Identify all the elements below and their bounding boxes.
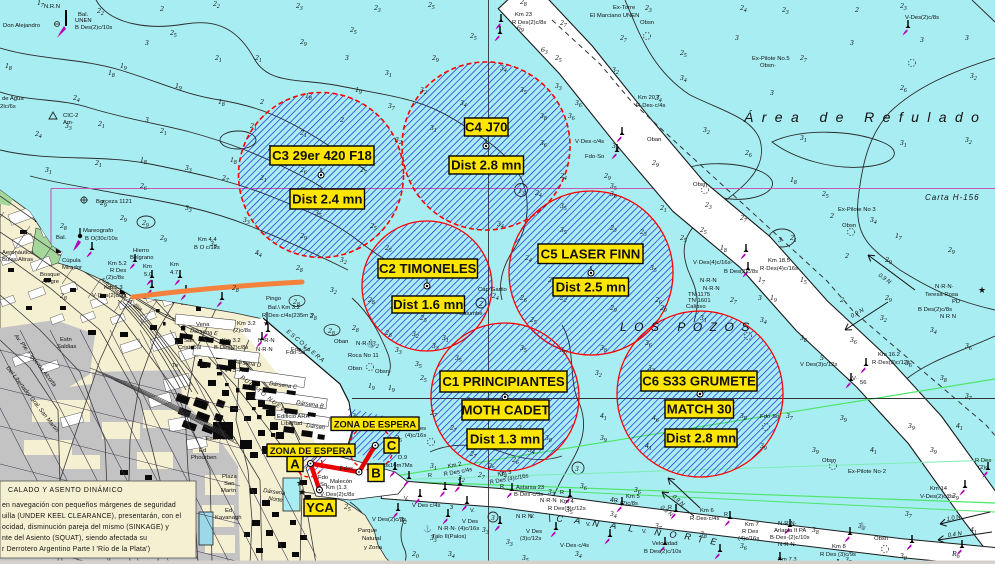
svg-text:Bosque: Bosque: [40, 272, 61, 278]
svg-text:Natural: Natural: [362, 536, 381, 542]
svg-text:⚓: ⚓: [858, 521, 867, 530]
svg-text:R: R: [560, 490, 564, 496]
svg-text:Ex-Pilote No.5: Ex-Pilote No.5: [752, 56, 790, 62]
svg-text:N R N: N R N: [940, 314, 956, 320]
svg-text:B·Des·c/3s: B·Des·c/3s: [514, 492, 543, 498]
svg-text:Arlapla II PA: Arlapla II PA: [774, 528, 806, 534]
svg-text:N.R.N: N.R.N: [44, 4, 60, 10]
svg-text:So: So: [320, 482, 328, 488]
svg-text:3: 3: [777, 235, 782, 244]
svg-text:R: R: [724, 512, 728, 518]
svg-text:(4)c/16s: (4)c/16s: [405, 433, 426, 439]
svg-text:Fdo·So: Fdo·So: [286, 350, 306, 356]
svg-text:Km 7: Km 7: [745, 522, 759, 528]
svg-text:Mareografo: Mareografo: [83, 228, 114, 234]
svg-text:Km: Km: [170, 262, 179, 268]
svg-text:Ex-Pilote No·2: Ex-Pilote No·2: [848, 469, 886, 475]
svg-text:N·R·N: N·R·N: [700, 278, 717, 284]
svg-text:Bal.: Bal.: [56, 235, 67, 241]
svg-text:Parque: Parque: [358, 528, 378, 534]
svg-text:Obsn: Obsn: [842, 223, 856, 229]
svg-text:Belgrano: Belgrano: [130, 255, 154, 261]
svg-text:C1 PRINCIPIANTES: C1 PRINCIPIANTES: [442, 374, 565, 389]
svg-text:3: 3: [144, 38, 149, 47]
svg-text:Dist 2.8 mn: Dist 2.8 mn: [666, 431, 736, 446]
svg-text:Dist 2.8 mn: Dist 2.8 mn: [451, 158, 521, 173]
svg-text:B Des(2)c/8s: B Des(2)c/8s: [918, 307, 952, 313]
svg-text:Km: Km: [143, 264, 152, 270]
svg-text:2: 2: [840, 295, 844, 304]
svg-text:N·R·N·: N·R·N·: [778, 542, 797, 548]
svg-text:56: 56: [860, 380, 867, 386]
svg-text:V·Des(2)c/8s: V·Des(2)c/8s: [320, 492, 354, 498]
svg-text:R·Des·c/4s(235m 3·: R·Des·c/4s(235m 3·: [262, 313, 315, 319]
svg-text:LOS POZOS: LOS POZOS: [620, 320, 757, 334]
svg-text:B: B: [371, 465, 381, 480]
svg-text:Fdo: Fdo: [318, 475, 329, 481]
svg-text:V Des: V Des: [526, 529, 542, 535]
svg-text:V·Des(4)c/16s·: V·Des(4)c/16s·: [693, 260, 733, 266]
svg-text:Km 4.4: Km 4.4: [198, 237, 217, 243]
svg-text:Estn: Estn: [60, 337, 72, 343]
svg-text:2: 2: [855, 5, 859, 14]
svg-text:3: 3: [964, 33, 969, 42]
svg-text:R·Des·c/4s: R·Des·c/4s: [690, 516, 720, 522]
svg-text:V.: V.: [404, 496, 409, 502]
svg-text:Ex-Torre: Ex-Torre: [613, 5, 636, 11]
svg-text:★: ★: [978, 285, 986, 295]
svg-text:Km 3.2: Km 3.2: [222, 338, 241, 344]
svg-text:Pingo: Pingo: [266, 296, 282, 302]
svg-text:★: ★: [298, 487, 306, 497]
svg-text:R: R: [428, 473, 432, 479]
svg-text:R Des (3)c/9s: R Des (3)c/9s: [820, 552, 856, 558]
svg-text:Cristóbal: Cristóbal: [178, 345, 201, 351]
svg-text:V·Des·c/4s: V·Des·c/4s: [575, 139, 604, 145]
svg-text:V Des c/4s: V Des c/4s: [412, 503, 441, 509]
svg-text:V·: V·: [852, 376, 858, 382]
svg-text:Km 5.2: Km 5.2: [108, 261, 127, 267]
svg-text:Dist 1.3 mn: Dist 1.3 mn: [470, 432, 540, 447]
svg-text:Km 14: Km 14: [930, 486, 948, 492]
svg-text:Ex-Pilote No 3: Ex-Pilote No 3: [838, 207, 876, 213]
svg-text:⚓: ⚓: [423, 524, 432, 533]
svg-text:3: 3: [919, 35, 924, 44]
svg-text:3: 3: [144, 115, 149, 124]
svg-text:Dist 2.4 mn: Dist 2.4 mn: [292, 192, 362, 207]
svg-text:C: C: [387, 438, 397, 453]
svg-text:Alegre: Alegre: [42, 279, 60, 285]
svg-text:3: 3: [849, 38, 854, 47]
svg-text:N R N: N R N: [516, 514, 532, 520]
svg-text:Mirador: Mirador: [62, 265, 82, 271]
svg-text:(2)c/8s: (2)c/8s: [233, 328, 251, 334]
svg-text:N·R·N·: N·R·N·: [778, 521, 797, 527]
svg-text:Roca No 11: Roca No 11: [348, 353, 379, 359]
svg-text:Km 6: Km 6: [700, 508, 714, 514]
svg-text:uilla (UNDER KEEL CLEARANCE),: uilla (UNDER KEEL CLEARANCE), presentará…: [2, 513, 181, 520]
svg-text:2: 2: [845, 251, 849, 260]
svg-text:Malecón: Malecón: [330, 479, 352, 485]
svg-text:N·R·N: N·R·N: [540, 498, 557, 504]
svg-text:Km 8: Km 8: [832, 544, 846, 550]
svg-text:B Des(2)c/8s: B Des(2)c/8s: [724, 269, 758, 275]
svg-text:nte del Asiento (SQUAT), siend: nte del Asiento (SQUAT), siendo afectada…: [2, 535, 147, 542]
svg-text:C4 J70: C4 J70: [465, 120, 508, 135]
svg-text:Martn: Martn: [221, 488, 236, 494]
svg-text:Obsn: Obsn: [640, 20, 654, 26]
svg-text:Obsn·: Obsn·: [375, 369, 391, 375]
svg-text:Aeronáutico: Aeronáutico: [2, 250, 34, 256]
svg-text:4.7: 4.7: [170, 270, 178, 276]
svg-text:R: R: [500, 484, 504, 490]
svg-text:Obsn: Obsn: [348, 366, 362, 372]
svg-text:Oban: Oban: [334, 339, 348, 345]
svg-text:B·Des(2)c/8s: B·Des(2)c/8s: [214, 345, 248, 351]
svg-text:Obsn: Obsn: [822, 458, 836, 464]
svg-text:PD: PD: [952, 299, 960, 305]
svg-text:Vena: Vena: [196, 322, 210, 328]
svg-text:r Derrotero Argentino Parte I: r Derrotero Argentino Parte I 'Río de la…: [2, 546, 150, 553]
svg-text:Km 23: Km 23: [515, 12, 533, 18]
svg-text:2: 2: [160, 4, 164, 13]
svg-text:2: 2: [260, 97, 264, 106]
svg-text:C3 29er 420 F18: C3 29er 420 F18: [272, 148, 372, 163]
svg-text:V.: V.: [642, 529, 647, 535]
svg-text:(2)c/8s: (2)c/8s: [620, 501, 638, 507]
svg-text:Bulas Altras: Bulas Altras: [2, 257, 33, 263]
svg-text:V.: V.: [586, 522, 591, 528]
svg-text:3: 3: [769, 88, 774, 97]
svg-text:B Des(2)c/10s: B Des(2)c/10s: [75, 25, 112, 31]
svg-text:Área de Refulado: Área de Refulado: [743, 109, 987, 125]
svg-text:Obsn: Obsn: [874, 536, 888, 542]
svg-text:CALADO Y ASENTO DINÁMICO: CALADO Y ASENTO DINÁMICO: [8, 485, 123, 494]
svg-text:San: San: [224, 481, 234, 487]
svg-text:V-Des(2)c/8s: V-Des(2)c/8s: [905, 15, 939, 21]
svg-text:Cúpula: Cúpula: [62, 258, 81, 264]
svg-text:R·Des(4)c/16s: R·Des(4)c/16s: [760, 266, 798, 272]
svg-text:ZONA DE ESPERA: ZONA DE ESPERA: [270, 446, 353, 456]
svg-text:de Agua: de Agua: [2, 96, 24, 102]
svg-text:2: 2: [340, 115, 344, 124]
svg-text:R Des: R Des: [975, 458, 991, 464]
svg-text:3: 3: [757, 293, 762, 302]
svg-text:MATCH 30: MATCH 30: [667, 402, 732, 417]
svg-text:en navegación con pequeños már: en navegación con pequeños márgenes de s…: [2, 502, 176, 509]
svg-text:Libertad: Libertad: [281, 421, 302, 427]
svg-text:Hierro: Hierro: [133, 248, 150, 254]
svg-text:Kavanagh: Kavanagh: [215, 515, 242, 521]
svg-text:Obsn·: Obsn·: [760, 63, 776, 69]
svg-text:Fdo·So: Fdo·So: [760, 414, 780, 420]
svg-text:Talo II(Palos): Talo II(Palos): [432, 534, 466, 540]
svg-text:2Ic/6s: 2Ic/6s: [0, 104, 16, 110]
svg-text:N·R·N: N·R·N: [256, 347, 273, 353]
svg-text:Km 3.2: Km 3.2: [237, 321, 256, 327]
svg-text:(2)c/8s: (2)c/8s: [106, 275, 124, 281]
svg-text:Velocidad: Velocidad: [652, 541, 678, 547]
svg-text:2: 2: [479, 299, 483, 308]
svg-text:Astarsa 23: Astarsa 23: [516, 485, 545, 491]
svg-text:y Zona: y Zona: [364, 545, 383, 551]
svg-text:B Des(2)c/10s: B Des(2)c/10s: [644, 549, 681, 555]
svg-text:Teresa Rosa: Teresa Rosa: [925, 292, 959, 298]
svg-text:Te: Te: [172, 363, 179, 369]
svg-text:V.: V.: [470, 508, 475, 514]
svg-text:C5 LASER FINN: C5 LASER FINN: [541, 246, 641, 261]
svg-text:3: 3: [344, 53, 349, 62]
svg-text:El Marciano UNEN: El Marciano UNEN: [590, 13, 639, 19]
svg-text:R Des: R Des: [742, 529, 758, 535]
svg-text:⚓: ⚓: [366, 338, 376, 348]
svg-text:B·Des·(2)c/10s: B·Des·(2)c/10s: [770, 535, 810, 541]
svg-text:Km 16.2: Km 16.2: [878, 352, 900, 358]
svg-text:Plaza: Plaza: [222, 474, 237, 480]
svg-text:R Des: R Des: [110, 268, 126, 274]
svg-text:C2 TIMONELES: C2 TIMONELES: [379, 261, 477, 276]
svg-text:Km 18.5: Km 18.5: [768, 258, 791, 264]
svg-text:Ed: Ed: [225, 508, 232, 514]
svg-text:Dist 2.5 mn: Dist 2.5 mn: [556, 280, 626, 295]
svg-text:B O(30c/10s: B O(30c/10s: [85, 236, 118, 242]
svg-text:ZONA DE ESPERA: ZONA DE ESPERA: [334, 420, 417, 430]
svg-text:YCA: YCA: [306, 500, 334, 515]
svg-text:5.0: 5.0: [144, 272, 153, 278]
svg-text:Obsn: Obsn: [693, 182, 707, 188]
svg-text:V Des(3)c/12s: V Des(3)c/12s: [800, 362, 837, 368]
svg-text:CIC-2: CIC-2: [63, 113, 78, 119]
svg-text:Km (1.3: Km (1.3: [326, 485, 347, 491]
svg-text:(3)c/12s: (3)c/12s: [520, 536, 541, 542]
svg-text:N·R·N: N·R·N: [258, 338, 275, 344]
svg-text:VTS-AIS: VTS-AIS: [224, 367, 250, 374]
svg-text:C6 S33 GRUMETE: C6 S33 GRUMETE: [642, 374, 756, 389]
svg-text:(2)c: (2)c: [978, 465, 988, 471]
svg-text:Edificio ARA: Edificio ARA: [277, 414, 309, 420]
svg-text:Don Alejandro: Don Alejandro: [3, 23, 41, 29]
svg-text:Phourben: Phourben: [191, 455, 217, 461]
svg-text:V-Des(2)c/8s: V-Des(2)c/8s: [920, 494, 954, 500]
svg-text:UNEN: UNEN: [75, 18, 92, 24]
svg-text:(4)c/16s: (4)c/16s: [458, 526, 479, 532]
svg-text:Fdos: Fdos: [340, 466, 353, 472]
svg-text:Fdo·So: Fdo·So: [585, 154, 605, 160]
svg-text:Saldias: Saldias: [57, 344, 76, 350]
svg-text:ocidad, disminución pareja del: ocidad, disminución pareja del mismo (SI…: [2, 524, 169, 531]
svg-text:2: 2: [830, 211, 834, 220]
svg-text:Ed: Ed: [199, 448, 206, 454]
svg-text:N·R·N·: N·R·N·: [935, 284, 954, 290]
svg-text:MOTH CADET: MOTH CADET: [462, 403, 550, 418]
svg-text:Dist 1.6 mn: Dist 1.6 mn: [393, 297, 463, 312]
svg-text:5: 5: [820, 353, 824, 362]
svg-text:V Des: V Des: [462, 519, 478, 525]
svg-text:D.9: D.9: [398, 455, 407, 461]
svg-text:Carta H-156: Carta H-156: [925, 193, 980, 202]
svg-text:N·R·N·: N·R·N·: [438, 526, 457, 532]
svg-text:3: 3: [734, 33, 739, 42]
svg-text:3: 3: [490, 513, 495, 522]
svg-text:Oban: Oban: [647, 137, 661, 143]
svg-text:3: 3: [574, 464, 579, 473]
svg-text:Calipso: Calipso: [686, 304, 706, 310]
svg-text:San: San: [184, 338, 194, 344]
svg-text:A: A: [290, 456, 300, 471]
